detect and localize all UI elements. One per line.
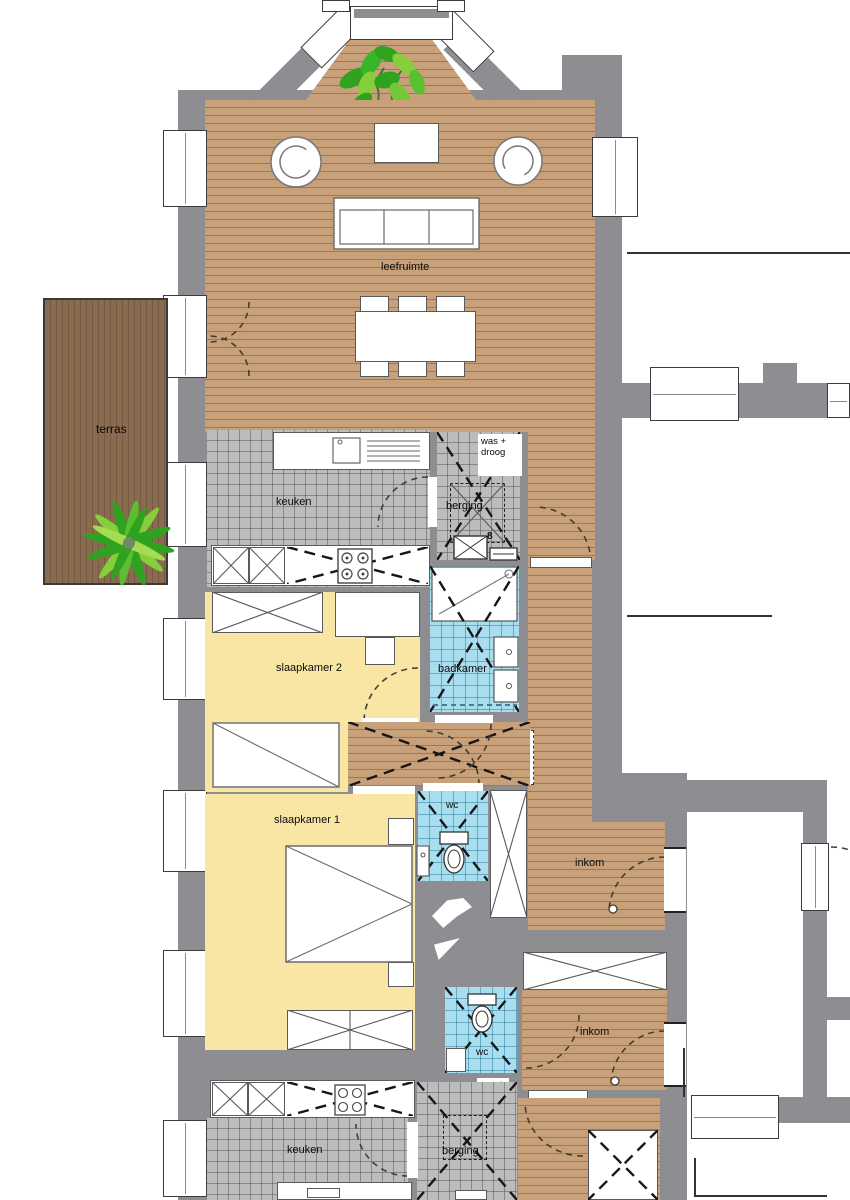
leefruimte-label: leefruimte (381, 261, 429, 273)
wardrobe-x (212, 592, 323, 633)
hall-corridor (528, 560, 592, 845)
slaapkamer1-label: slaapkamer 1 (274, 814, 340, 826)
wall-stub-right (827, 997, 850, 1020)
bed-double (285, 845, 413, 963)
washbasin (493, 669, 519, 703)
badkamer-label: badkamer (438, 663, 487, 675)
inkom-label-2: inkom (580, 1026, 609, 1038)
stairwell-door-arc (829, 845, 850, 910)
property-line-upper (627, 252, 850, 254)
bay-window-center-sill (354, 9, 449, 18)
kitchen-sink (330, 435, 426, 466)
cabinet-x-lines (213, 547, 249, 584)
window-upper-right-2 (827, 383, 850, 418)
dining-chair (360, 296, 389, 312)
stairwell-top-wall (668, 780, 827, 812)
desk (335, 592, 420, 637)
terrace-door-arc (207, 334, 251, 378)
kitchen2-lower-counter (277, 1182, 412, 1200)
slaapkamer2-label: slaapkamer 2 (276, 662, 342, 674)
window-right-living (592, 137, 638, 217)
cabinet-x-lines (249, 547, 285, 584)
window-left-5 (163, 950, 207, 1037)
window-left-4 (163, 790, 207, 872)
cabinet-x-lines (248, 1082, 285, 1116)
keuken-label-1: keuken (276, 496, 311, 508)
berging-dashed-zone-x (450, 483, 505, 543)
cabinet-x-lines (212, 1082, 248, 1116)
wall-top-right (562, 55, 622, 95)
lounge-chair-right (491, 134, 545, 188)
window-left-1 (163, 130, 207, 207)
unit-boundary-line (627, 615, 772, 617)
window-upper-right-1 (650, 367, 739, 421)
wc-door-gap (423, 783, 483, 791)
nightstand (388, 818, 414, 845)
inkom-label-1: inkom (575, 857, 604, 869)
bed-single (212, 722, 340, 788)
wall-bottom-right-band (778, 1097, 850, 1123)
toilet (466, 993, 498, 1037)
window-bottom-right (691, 1095, 779, 1139)
dining-table (355, 311, 476, 362)
wc-label-1: wc (446, 800, 458, 811)
stairwell-entry-door (801, 843, 829, 911)
wc-door-arc (423, 729, 481, 787)
keuken2-door-gap (407, 1122, 418, 1178)
plant-palm (78, 490, 180, 596)
dining-chair (360, 361, 389, 377)
stairwell (687, 812, 803, 1097)
slaapkamer2-door-arc (362, 666, 420, 724)
cooktop (334, 1084, 366, 1116)
wall-bump-upper-right (763, 363, 797, 383)
dining-chair (436, 296, 465, 312)
window-left-3 (163, 618, 207, 700)
toilet (438, 831, 470, 877)
berging2-fixture (455, 1190, 487, 1200)
berging-label-1: berging (446, 500, 483, 512)
dresser (365, 637, 395, 665)
berging-label-2: berging (442, 1145, 479, 1157)
bottomright-door-arc (523, 1100, 585, 1158)
wc-shower-tray (446, 1048, 466, 1072)
terras-label: terras (96, 423, 127, 436)
wardrobe-x (490, 790, 527, 918)
entry-door-gap (664, 847, 686, 913)
wall-outline-line (694, 1195, 827, 1197)
nightstand (388, 962, 414, 987)
terrace-door (163, 295, 207, 378)
lounge-chair-left (268, 134, 324, 190)
boiler-label: 8 (487, 531, 493, 542)
dining-chair (398, 361, 427, 377)
floor-plan: leefruimte terras (0, 0, 850, 1200)
kitchen2-sink (307, 1188, 340, 1198)
wardrobe-x (287, 1010, 413, 1050)
keuken-door-arc (376, 475, 430, 529)
window-left-6 (163, 1120, 207, 1197)
washer (453, 535, 488, 560)
was-droog-label-1: was +droog (481, 437, 506, 458)
wc-sink (416, 845, 430, 877)
badkamer-threshold (433, 703, 517, 707)
wc-label-2: wc (476, 1047, 488, 1058)
inkom2-door-arc-left (524, 1013, 581, 1070)
bay-sill-left (322, 0, 350, 12)
wardrobe-x (523, 952, 667, 990)
wall-outline-line (683, 1048, 685, 1097)
keuken2-door-arc (354, 1122, 410, 1178)
keuken-label-2: keuken (287, 1144, 322, 1156)
dining-chair (436, 361, 465, 377)
washbasin (493, 636, 519, 668)
cooktop (337, 548, 373, 584)
inkom-door-arc (607, 855, 667, 915)
bay-sill-right (437, 0, 465, 12)
inkom2-door-arc-right (609, 1029, 667, 1087)
wall-outline-line (694, 1158, 696, 1197)
wardrobe-x-bold (588, 1130, 658, 1200)
dining-chair (398, 296, 427, 312)
sofa (333, 197, 480, 250)
side-table (374, 123, 439, 163)
hall-door-leaf (530, 557, 592, 568)
hall-door-arc (533, 505, 593, 565)
boiler-unit (489, 547, 518, 561)
